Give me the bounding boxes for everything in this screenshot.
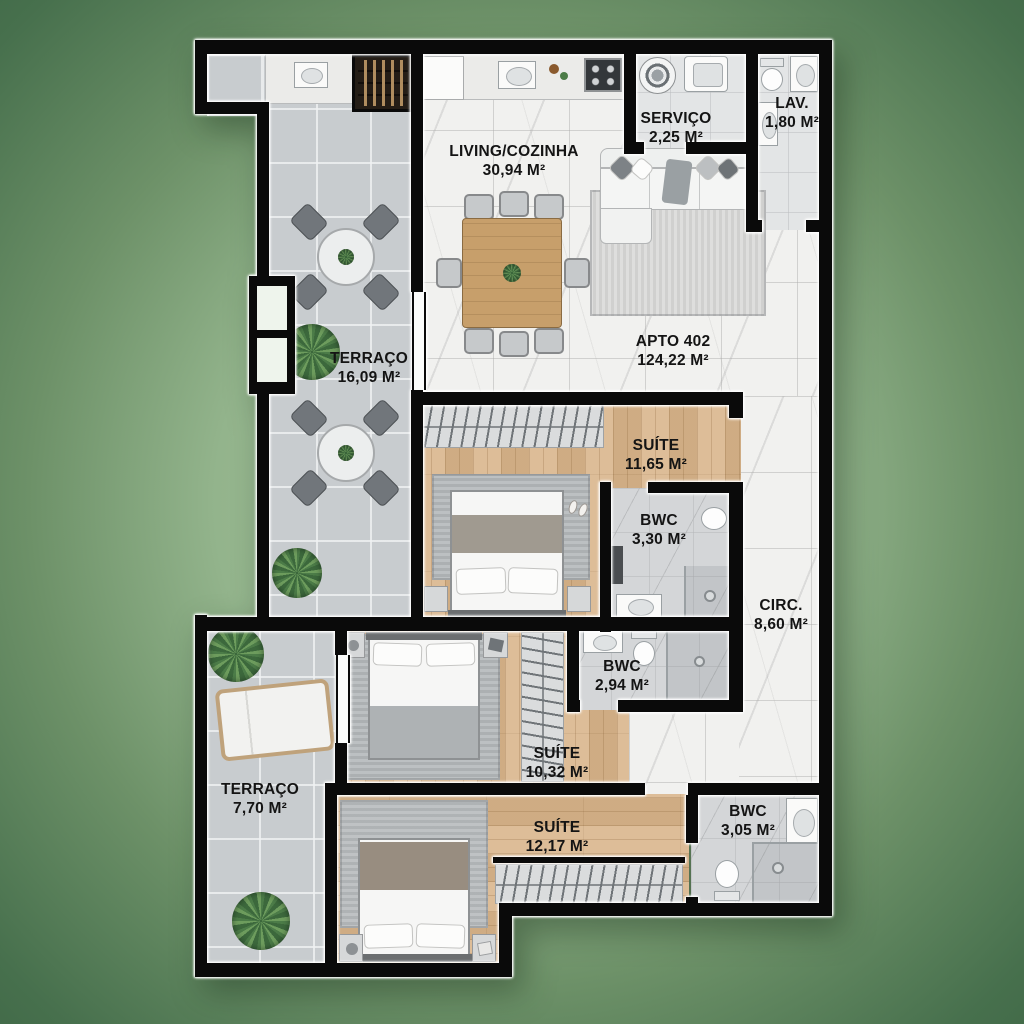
bathroom-sink: [583, 630, 623, 653]
toilet: [700, 505, 738, 532]
laundry-sink: [684, 56, 728, 92]
bed-blanket: [370, 706, 478, 758]
sofa-throw-blanket: [661, 159, 692, 206]
bed-pillow: [416, 923, 466, 949]
grill: [352, 54, 414, 112]
bathroom-sink: [616, 594, 662, 618]
table-plant: [338, 445, 354, 461]
wall: [195, 40, 207, 114]
herb-pot: [560, 72, 568, 80]
sofa-chaise: [600, 208, 652, 244]
bed-pillow: [373, 642, 423, 667]
bath-mat: [611, 546, 623, 584]
cooktop: [584, 58, 622, 92]
bed-pillow: [456, 567, 507, 595]
terrace-plant: [232, 892, 290, 950]
nightstand: [340, 632, 365, 658]
dining-chair: [534, 194, 564, 220]
bed-headboard: [356, 954, 472, 962]
bed-headboard: [366, 632, 482, 640]
dining-chair: [499, 191, 529, 217]
toilet: [631, 631, 657, 667]
nightstand: [339, 934, 363, 962]
table-plant: [338, 249, 354, 265]
lav-vanity: [790, 56, 818, 92]
nightstand: [483, 632, 508, 658]
shower-drain: [694, 656, 705, 667]
suite-3-closet-rail: [495, 864, 683, 904]
pepper-mill: [549, 64, 559, 74]
table-plant: [503, 264, 521, 282]
terrace-plant: [284, 324, 340, 380]
suite-2-wardrobe: [521, 632, 564, 782]
terrace-1-floor-notch: [207, 54, 269, 116]
shower-area: [752, 842, 818, 903]
circ-ext-floor: [629, 706, 739, 794]
bed-pillow: [364, 923, 414, 949]
lav-toilet: [760, 58, 784, 92]
sun-lounger: [215, 678, 336, 762]
terrace-plant: [208, 626, 264, 682]
shower-drain: [704, 590, 716, 602]
dining-chair: [464, 328, 494, 354]
bed-blanket: [360, 842, 468, 890]
circ-floor: [735, 396, 822, 794]
bed-pillow: [508, 567, 559, 595]
washing-machine: [639, 57, 676, 94]
fridge: [420, 56, 464, 100]
bed-headboard: [448, 610, 566, 618]
nightstand: [424, 586, 448, 612]
lav-sink: [758, 102, 778, 146]
terrace-sink: [294, 62, 328, 88]
bed-pillow: [426, 642, 476, 667]
bed-blanket: [452, 515, 562, 553]
shower-drain: [772, 862, 784, 874]
dining-chair: [499, 331, 529, 357]
dining-chair: [564, 258, 590, 288]
toilet: [714, 860, 740, 902]
suite-1-wardrobe: [420, 404, 604, 448]
kitchen-sink: [498, 61, 536, 89]
dining-chair: [436, 258, 462, 288]
terrace-plant: [272, 548, 322, 598]
bathroom-vanity: [786, 798, 818, 844]
nightstand: [472, 934, 496, 962]
dining-chair: [464, 194, 494, 220]
floor-plan: LIVING/COZINHA 30,94 M² SERVIÇO 2,25 M² …: [0, 0, 1024, 1024]
nightstand: [567, 586, 591, 612]
dining-chair: [534, 328, 564, 354]
